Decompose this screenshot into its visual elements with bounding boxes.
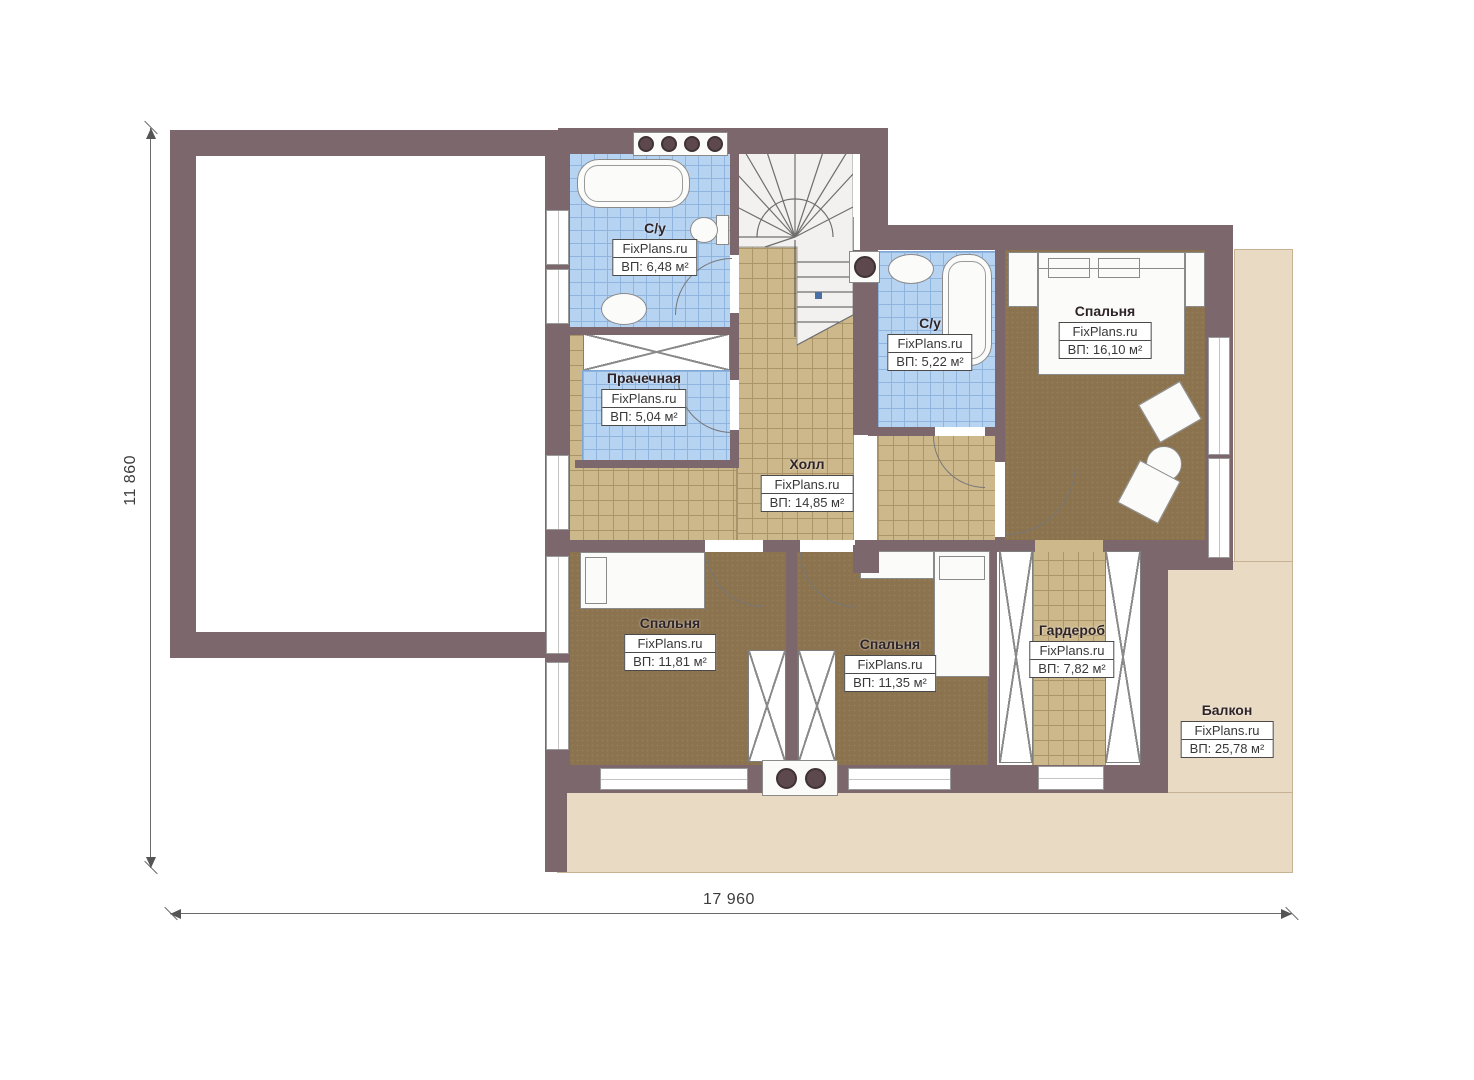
door-gap-bathroom2: [935, 427, 985, 436]
dimension-height-label: 11 860: [122, 455, 140, 506]
void-wall-bottom: [170, 632, 570, 658]
label-wardrobe: Гардероб FixPlans.ru ВП: 7,82 м²: [1029, 622, 1114, 678]
laundry-closet: [583, 333, 730, 371]
brand-text: FixPlans.ru: [613, 240, 696, 257]
room-name: Гардероб: [1029, 622, 1114, 638]
room-name: Холл: [761, 456, 854, 472]
door-gap-bedroom1: [705, 540, 763, 552]
stair-direction-marker: [815, 292, 822, 299]
window-left-3: [546, 455, 569, 530]
sink-bathroom1: [601, 293, 647, 325]
wall-bath1-bottom: [568, 327, 738, 335]
wall-laundry-bottom: [575, 460, 739, 468]
bathtub-1: [577, 159, 690, 208]
room-name: С/у: [887, 315, 972, 331]
dimension-width-label: 17 960: [703, 891, 755, 909]
label-balcony: Балкон FixPlans.ru ВП: 25,78 м²: [1181, 702, 1274, 758]
wall-top-right: [860, 225, 1233, 250]
room-name: Спальня: [624, 615, 716, 631]
staircase: [737, 152, 853, 347]
washer-drum-icon: [638, 136, 654, 152]
vent-box-hall: [849, 251, 880, 283]
bed-bedroom1: [580, 552, 705, 609]
void-wall-left: [170, 130, 196, 658]
room-area: ВП: 25,78 м²: [1182, 739, 1273, 757]
vent-pipe-icon: [854, 256, 876, 278]
brand-text: FixPlans.ru: [1060, 323, 1151, 340]
door-gap-bedroom2: [800, 540, 855, 552]
brand-text: FixPlans.ru: [1030, 642, 1113, 659]
vent-column-hall: [853, 545, 879, 573]
room-area: ВП: 16,10 м²: [1060, 340, 1151, 358]
window-left-4: [546, 556, 569, 654]
closet-bedroom1: [748, 650, 786, 762]
label-bedroom2: Спальня FixPlans.ru ВП: 11,35 м²: [844, 636, 936, 692]
pillow: [939, 556, 985, 580]
door-gap-master: [995, 462, 1005, 537]
label-laundry: Прачечная FixPlans.ru ВП: 5,04 м²: [601, 370, 686, 426]
bed-bedroom2: [934, 551, 990, 677]
label-bathroom2: С/у FixPlans.ru ВП: 5,22 м²: [887, 315, 972, 371]
room-name: Прачечная: [601, 370, 686, 386]
washing-machines: [633, 132, 728, 156]
window-left-2: [546, 269, 569, 324]
washer-drum-icon: [684, 136, 700, 152]
closet-bedroom2: [798, 650, 836, 762]
nightstand-left: [1008, 252, 1038, 307]
dimension-line-vertical: [150, 128, 151, 868]
room-name: Спальня: [844, 636, 936, 652]
window-bottom-bedroom1: [600, 768, 748, 790]
room-area: ВП: 6,48 м²: [613, 257, 696, 275]
wall-bedroom1-bedroom2: [786, 548, 797, 768]
brand-text: FixPlans.ru: [762, 476, 853, 493]
floor-plan-canvas: С/у FixPlans.ru ВП: 6,48 м² С/у FixPlans…: [0, 0, 1474, 1080]
label-bedroom1: Спальня FixPlans.ru ВП: 11,81 м²: [624, 615, 716, 671]
room-area: ВП: 14,85 м²: [762, 493, 853, 511]
brand-text: FixPlans.ru: [602, 390, 685, 407]
balcony-floor-bottom: [558, 793, 1292, 872]
window-left-5: [546, 662, 569, 750]
void-wall-top: [170, 130, 558, 156]
window-bottom-bedroom2: [848, 768, 951, 790]
nightstand-right: [1185, 252, 1205, 307]
brand-text: FixPlans.ru: [888, 335, 971, 352]
room-area: ВП: 11,81 м²: [625, 652, 715, 670]
brand-text: FixPlans.ru: [845, 656, 935, 673]
vent-pipe-icon: [776, 768, 797, 789]
balcony-floor-right-top: [1235, 250, 1292, 572]
window-right-1: [1208, 337, 1230, 455]
label-hall: Холл FixPlans.ru ВП: 14,85 м²: [761, 456, 854, 512]
label-bedroom-master: Спальня FixPlans.ru ВП: 16,10 м²: [1059, 303, 1152, 359]
washer-drum-icon: [707, 136, 723, 152]
vent-box-bottom: [762, 760, 838, 796]
room-name: С/у: [612, 220, 697, 236]
sink-bathroom2: [888, 254, 934, 284]
vent-pipe-icon: [805, 768, 826, 789]
room-area: ВП: 11,35 м²: [845, 673, 935, 691]
wardrobe-exit-door: [1038, 766, 1104, 790]
brand-text: FixPlans.ru: [625, 635, 715, 652]
window-left-1: [546, 210, 569, 265]
door-gap-wardrobe-top: [1035, 540, 1103, 552]
dimension-line-horizontal: [170, 913, 1292, 914]
window-right-2: [1208, 458, 1230, 558]
label-bathroom1: С/у FixPlans.ru ВП: 6,48 м²: [612, 220, 697, 276]
room-name: Спальня: [1059, 303, 1152, 319]
room-name: Балкон: [1181, 702, 1274, 718]
pillow: [585, 557, 607, 604]
wall-stub-bottom-left: [545, 793, 567, 872]
wall-right-wardrobe: [1140, 548, 1168, 793]
room-area: ВП: 7,82 м²: [1030, 659, 1113, 677]
wardrobe-closet-left: [999, 551, 1033, 763]
room-area: ВП: 5,22 м²: [888, 352, 971, 370]
washer-drum-icon: [661, 136, 677, 152]
brand-text: FixPlans.ru: [1182, 722, 1273, 739]
room-area: ВП: 5,04 м²: [602, 407, 685, 425]
